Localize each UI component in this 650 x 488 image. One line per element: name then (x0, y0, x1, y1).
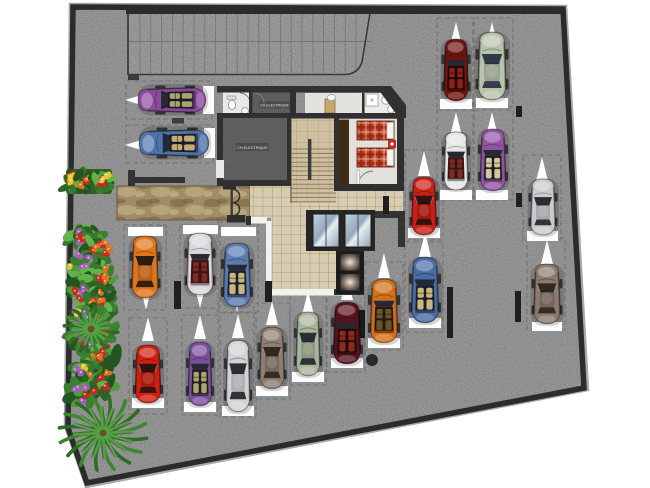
svg-text:CH.ELECTRIQUE: CH.ELECTRIQUE (260, 104, 289, 108)
svg-text:CH.ELECTRIQUE: CH.ELECTRIQUE (237, 146, 268, 150)
